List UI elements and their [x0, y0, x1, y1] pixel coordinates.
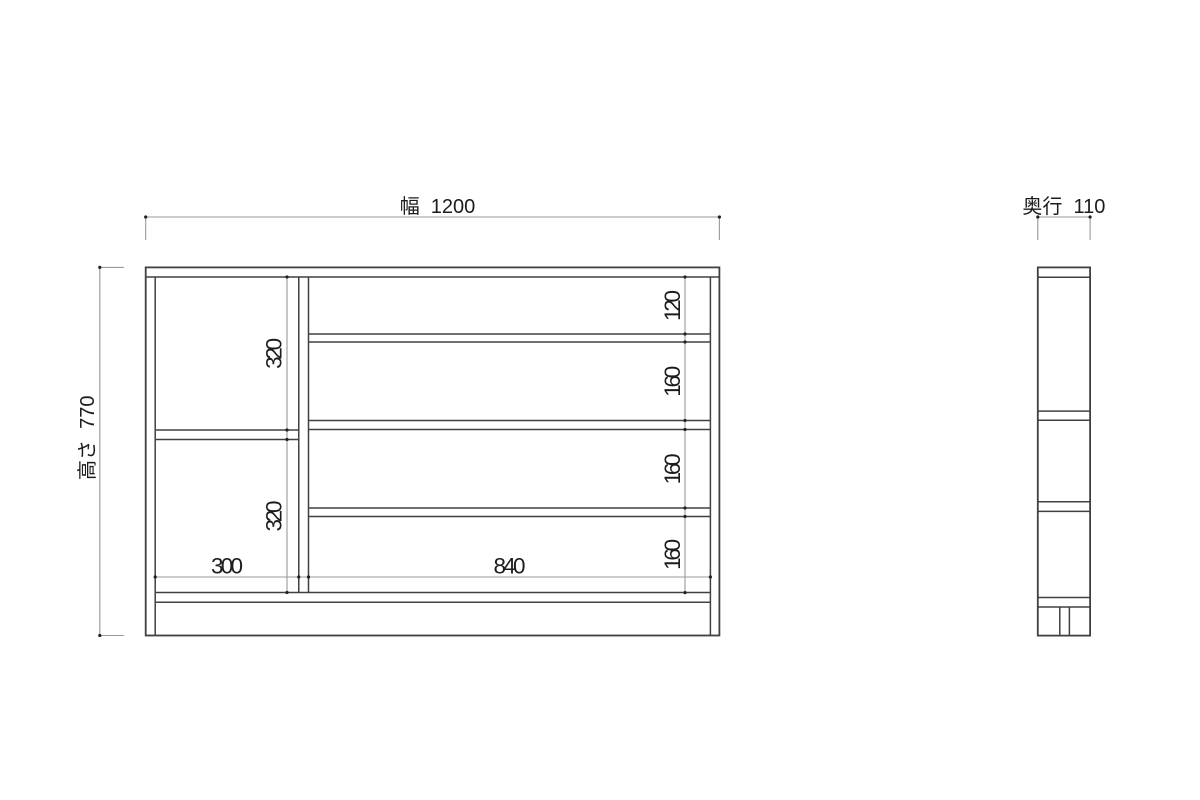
svg-text:300: 300 [211, 554, 243, 579]
svg-text:幅 1200: 幅 1200 [400, 195, 476, 218]
svg-text:320: 320 [262, 501, 287, 532]
svg-text:奥行 110: 奥行 110 [1022, 195, 1105, 218]
svg-text:160: 160 [660, 453, 685, 484]
svg-text:160: 160 [660, 539, 685, 570]
svg-text:320: 320 [262, 338, 287, 369]
svg-text:160: 160 [660, 366, 685, 397]
svg-text:840: 840 [494, 554, 526, 579]
svg-text:高さ 770: 高さ 770 [76, 396, 99, 480]
svg-text:120: 120 [660, 290, 685, 321]
